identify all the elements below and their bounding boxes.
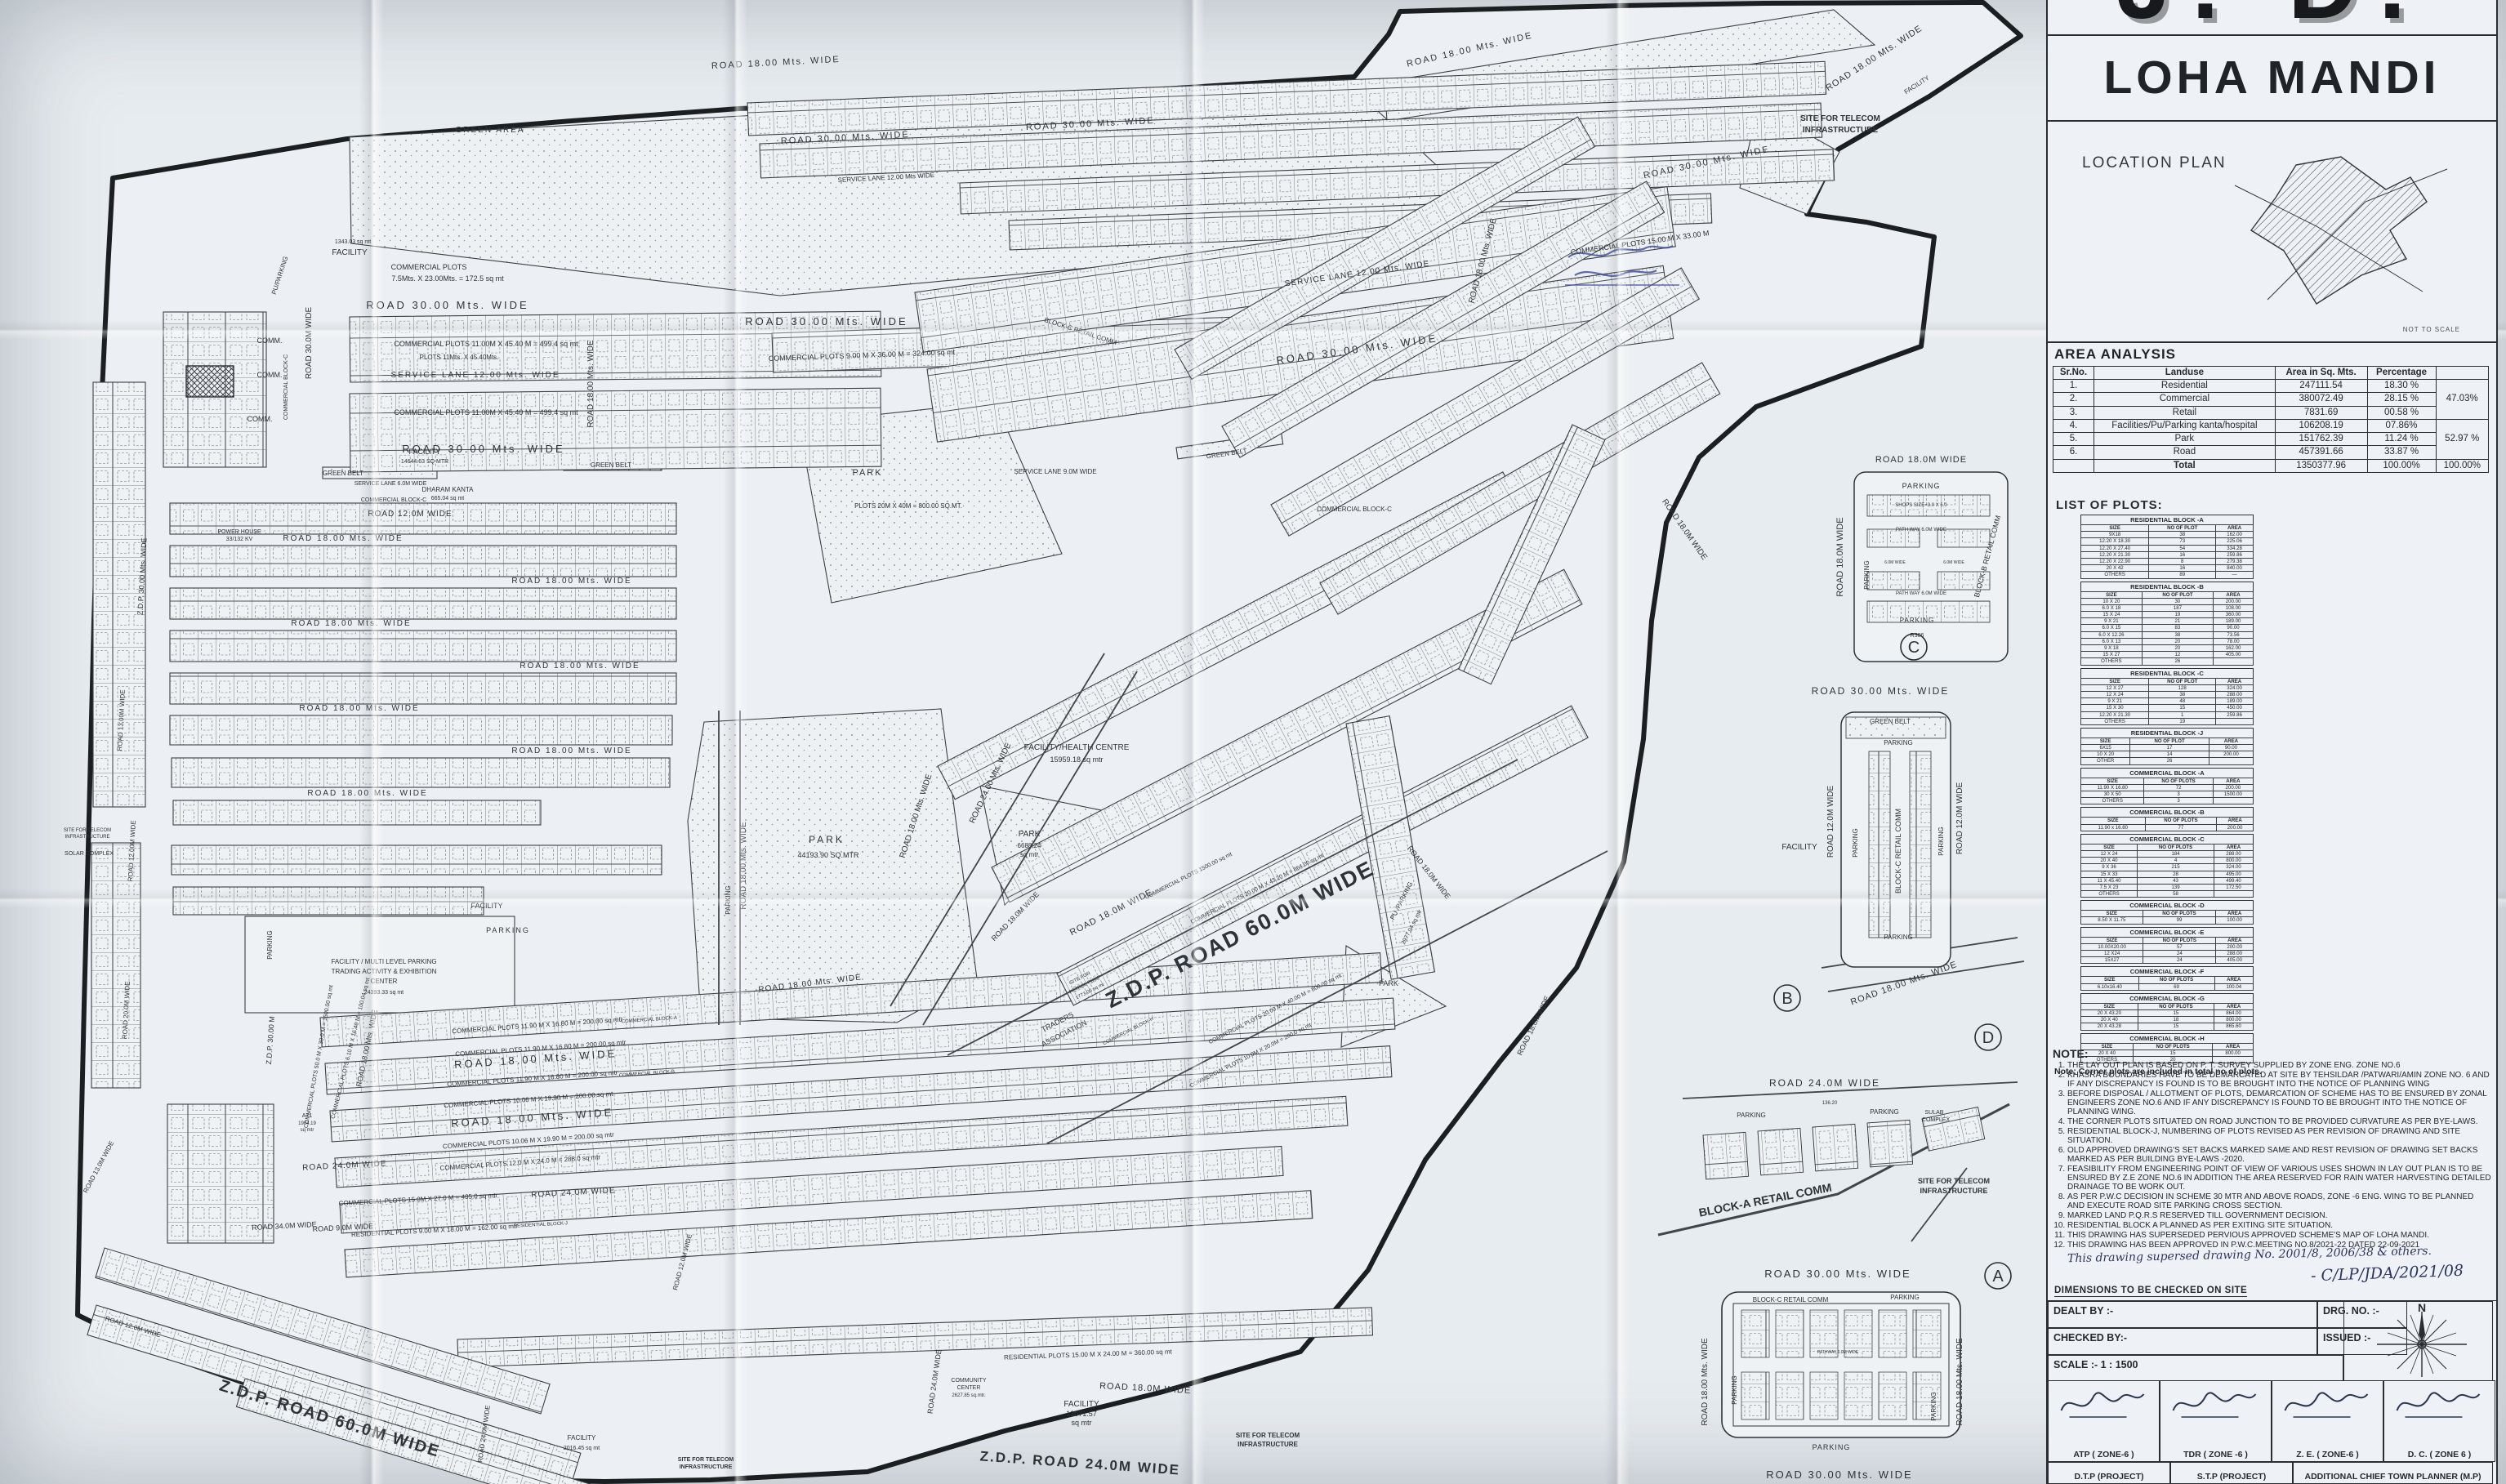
note-item: OLD APPROVED DRAWING'S SET BACKS MARKED … <box>2067 1146 2491 1164</box>
title-panel: J. D. A. LOHA MANDI LOCATION PLAN NOT TO… <box>2046 0 2498 1484</box>
map-label: BLOCK-C RETAIL COMM <box>1753 1296 1829 1304</box>
plot-block-title: COMMERCIAL BLOCK -H <box>2080 1033 2254 1043</box>
note-item: THIS DRAWING HAS SUPERSEDED PERVIOUS APP… <box>2067 1231 2491 1240</box>
map-label: 6.0M WIDE <box>1884 560 1906 565</box>
map-label: 6688.24 <box>1018 842 1041 849</box>
map-label: PARK <box>809 834 845 845</box>
plot-block-table: RESIDENTIAL BLOCK -JSIZENO OF PLOTAREA6X… <box>2080 728 2254 765</box>
map-label: SERVICE LANE 9.0M WIDE <box>1014 468 1096 475</box>
note-item: FEASIBILITY FROM ENGINEERING POINT OF VI… <box>2067 1165 2491 1192</box>
map-label: 14644.63 SQ MTR <box>401 459 448 465</box>
signatory-designation: D. C. ( ZONE 6 ) <box>2384 1450 2495 1459</box>
map-label: SITE FOR TELECOM <box>64 828 111 833</box>
map-label: ROAD 30.0M WIDE <box>305 307 314 380</box>
map-label: COMMUNITY <box>951 1378 986 1384</box>
area-cell: 3. <box>2053 406 2094 419</box>
map-label: PARKING <box>1737 1112 1765 1119</box>
map-label: 2016.45 sq mt <box>564 1446 600 1451</box>
area-row: 5.Park151762.3911.24 % <box>2053 433 2489 446</box>
map-label: SERVICE LANE 6.0M WIDE <box>354 481 427 487</box>
map-label: 1904.19 <box>298 1121 316 1126</box>
map-label: 33/132 KV <box>226 537 253 542</box>
map-label: ROAD 30.00 Mts. WIDE <box>1764 1268 1911 1280</box>
map-label: PLOTS 11Mts. X 45.40Mts. <box>420 354 499 361</box>
map-label: 6.0M WIDE <box>1943 560 1964 565</box>
area-cell: 11.24 % <box>2367 433 2436 446</box>
plot-block-table: RESIDENTIAL BLOCK -ASIZENO OF PLOTAREA9X… <box>2080 515 2254 579</box>
area-cell: 106208.19 <box>2275 419 2367 432</box>
map-label: CENTER <box>957 1385 981 1391</box>
notes-section: NOTE: THE LAY OUT PLAN IS BASED ON P. T.… <box>2048 1045 2496 1250</box>
map-label: PARKING <box>486 926 530 934</box>
area-cell: 457391.66 <box>2275 446 2367 459</box>
compass-rose-icon: N <box>2344 1302 2492 1380</box>
note-item: BEFORE DISPOSAL / ALLOTMENT OF PLOTS, DE… <box>2067 1090 2491 1116</box>
signature-cell: TDR ( ZONE -6 ) <box>2160 1380 2272 1462</box>
map-label: sq mtr <box>1071 1419 1091 1427</box>
map-label: COMM. <box>257 336 283 345</box>
signatory-designation: ATP ( ZONE-6 ) <box>2049 1450 2159 1459</box>
plot-block-table: COMMERCIAL BLOCK -ESIZENO OF PLOTSAREA10… <box>2080 927 2254 965</box>
location-plan-scale-note: NOT TO SCALE <box>2403 326 2460 333</box>
north-compass-cell: N <box>2343 1301 2493 1381</box>
map-label: PARK <box>852 468 882 478</box>
map-label: 1343.03 sq mt <box>335 239 371 245</box>
map-label: GREEN BELT <box>591 461 631 469</box>
map-label: FACILITY <box>1781 843 1817 852</box>
area-row: 6.Road457391.6633.87 % <box>2053 446 2489 459</box>
map-label: SITE FOR TELECOM <box>1918 1177 1990 1185</box>
map-label: SITE FOR TELECOM <box>1236 1432 1300 1439</box>
map-label: COMMERCIAL BLOCK-C <box>1317 506 1392 513</box>
dimensions-note: DIMENSIONS TO BE CHECKED ON SITE <box>2054 1286 2247 1297</box>
handwritten-reference-number: - C/LP/JDA/2021/08 <box>2311 1262 2464 1286</box>
area-cell: 247111.54 <box>2275 380 2367 393</box>
map-label: ROAD 18.00 Mts. WIDE <box>1955 1338 1964 1426</box>
map-label: ROAD 18.0M WIDE <box>1835 517 1845 596</box>
map-label: ROAD 18.00 Mts. WIDE <box>283 534 403 543</box>
map-label: PARKING <box>1900 617 1934 624</box>
plot-block-table: RESIDENTIAL BLOCK -CSIZENO OF PLOTAREA12… <box>2080 668 2254 725</box>
map-label: PARKING <box>1884 934 1912 941</box>
area-analysis-section: AREA ANALYSIS Sr.No.LanduseArea in Sq. M… <box>2048 341 2496 473</box>
area-row: 4.Facilities/Pu/Parking kanta/hospital10… <box>2053 419 2489 432</box>
map-label: PARKING <box>266 930 274 959</box>
area-cell: Residential <box>2094 380 2275 393</box>
map-label: ROAD 24.0M WIDE <box>1769 1077 1880 1089</box>
map-label: DHARAM KANTA <box>422 486 475 493</box>
park-area-large <box>688 709 977 1023</box>
map-label: ROAD 18.00 Mts. WIDE <box>307 789 427 798</box>
map-label: PATH WAY 6.0M WIDE <box>1896 528 1946 533</box>
map-label: ROAD 18.00 Mts. WIDE <box>511 746 631 755</box>
map-label: PARKING <box>1731 1375 1738 1404</box>
map-label: 2627.85 sq.mtr. <box>952 1393 986 1398</box>
map-label: ROAD 18.00 Mts. WIDE <box>519 662 640 671</box>
map-label: sq mtr <box>1020 851 1039 858</box>
signature-ink <box>2057 1386 2151 1431</box>
map-label: ROAD 18.00 Mts. WIDE <box>291 619 411 628</box>
map-label: SERVICE LANE 12.00 Mts. WIDE <box>391 371 560 380</box>
area-total-cell: Total <box>2094 459 2275 472</box>
map-label: INFRASTRUCTURE <box>680 1464 733 1470</box>
plot-block-title: COMMERCIAL BLOCK -C <box>2080 834 2254 844</box>
title-block-grid: DEALT BY :- CHECKED BY:- SCALE :- 1 : 15… <box>2048 1300 2496 1381</box>
map-label: ROAD 18.00 Mts. WIDE <box>739 822 748 910</box>
layout-plan-map: GREEN AREAROAD 18.00 Mts. WIDEROAD 30.00… <box>0 0 2046 1484</box>
map-label: PARKING <box>1870 1108 1898 1116</box>
map-label: INFRASTRUCTURE <box>1920 1187 1988 1195</box>
area-total-cell: 100.00% <box>2436 459 2488 472</box>
map-label: PARKING <box>1863 560 1871 589</box>
map-label: COMPLEX <box>1922 1117 1951 1123</box>
map-label: PATH WAY 6.0M WIDE <box>1896 591 1946 596</box>
note-item: RESIDENTIAL BLOCK-J, NUMBERING OF PLOTS … <box>2067 1127 2491 1145</box>
area-total-row: Total1350377.96100.00%100.00% <box>2053 459 2489 472</box>
map-label: PATHWAY 6.0M WIDE <box>1817 1350 1859 1355</box>
map-label: POWER HOUSE <box>217 529 261 535</box>
map-label: A71 <box>302 1113 313 1119</box>
plot-block-title: COMMERCIAL BLOCK -B <box>2080 807 2254 817</box>
area-cell: 07.86% <box>2367 419 2436 432</box>
note-item: THE CORNER PLOTS SITUATED ON ROAD JUNCTI… <box>2067 1117 2491 1126</box>
area-row: 1.Residential247111.5418.30 %47.03% <box>2053 380 2489 393</box>
signature-cell: D. C. ( ZONE 6 ) <box>2383 1380 2495 1462</box>
plot-block-title: COMMERCIAL BLOCK -D <box>2080 900 2254 910</box>
map-label: FACILITY <box>332 248 368 257</box>
notes-heading: NOTE: <box>2053 1047 2496 1060</box>
block-circle-letter: D <box>1982 1029 1994 1047</box>
area-group-percentage: 47.03% <box>2436 380 2488 420</box>
map-label: SOLAR COMPLEX <box>65 851 114 857</box>
signature-cell: Z. E. ( ZONE-6 ) <box>2272 1380 2383 1462</box>
note-item: MARKED LAND P.Q.R.S RESERVED TILL GOVERN… <box>2067 1211 2491 1220</box>
map-label: INFRASTRUCTURE <box>65 835 110 840</box>
area-col-header <box>2436 367 2488 380</box>
area-cell: Commercial <box>2094 393 2275 406</box>
map-label: PARKING <box>1930 1392 1937 1420</box>
signature-ink <box>2392 1386 2486 1431</box>
area-cell: 2. <box>2053 393 2094 406</box>
area-group-percentage: 52.97 % <box>2436 419 2488 459</box>
map-label: FACILITY <box>470 902 502 910</box>
block-circle-letter: C <box>1908 639 1920 657</box>
map-label: FACILITY <box>1063 1400 1099 1409</box>
north-label: N <box>2418 1302 2426 1314</box>
map-label: SITE FOR TELECOM <box>678 1457 734 1463</box>
plot-block-table: COMMERCIAL BLOCK -FSIZENO OF PLOTSAREA6.… <box>2080 966 2254 990</box>
map-label: GREEN BELT <box>323 470 363 477</box>
area-cell: 28.15 % <box>2367 393 2436 406</box>
map-label: 44193.90 SQ.MTR <box>797 851 859 859</box>
map-label: COMMERCIAL PLOTS 11.00M X 45.40 M = 499.… <box>394 408 578 417</box>
map-label: PLOTS 20M X 40M = 800.00 SQ.MT. <box>854 502 962 510</box>
map-label: PARK <box>1019 830 1041 839</box>
map-label: PARK <box>1379 979 1398 987</box>
map-label: 24393.33 sq mt <box>364 990 404 996</box>
plot-block-title: COMMERCIAL BLOCK -G <box>2080 993 2254 1003</box>
map-label: Z.D.P. ROAD 24.0M WIDE <box>979 1448 1181 1477</box>
signature-row-1: ATP ( ZONE-6 )TDR ( ZONE -6 )Z. E. ( ZON… <box>2048 1380 2496 1462</box>
map-label: CENTER <box>371 978 398 985</box>
area-cell: Park <box>2094 433 2275 446</box>
area-cell: 18.30 % <box>2367 380 2436 393</box>
area-analysis-table: Sr.No.LanduseArea in Sq. Mts.Percentage … <box>2053 366 2489 473</box>
scanned-drawing-sheet: GREEN AREAROAD 18.00 Mts. WIDEROAD 30.00… <box>0 0 2506 1484</box>
agency-name: J. D. A. <box>2048 0 2496 36</box>
area-col-header: Sr.No. <box>2053 367 2094 380</box>
map-label: ROAD 30.00 Mts. WIDE <box>1812 685 1950 697</box>
map-label: PARKING <box>1937 827 1945 855</box>
area-cell: Retail <box>2094 406 2275 419</box>
map-label: ROAD 30.00 Mts. WIDE <box>1766 1468 1912 1481</box>
map-label: COMMERCIAL BLOCK-C <box>283 354 289 420</box>
area-cell: Road <box>2094 446 2275 459</box>
area-col-header: Landuse <box>2094 367 2275 380</box>
signatory-designation: Z. E. ( ZONE-6 ) <box>2272 1450 2383 1459</box>
map-label: ROAD 12.0M WIDE <box>1826 786 1835 858</box>
map-label: ROAD 18.00 Mts. WIDE <box>299 704 419 713</box>
list-of-plots-heading: LIST OF PLOTS: <box>2056 498 2496 512</box>
map-label: ROAD 30.00 Mts. WIDE <box>366 299 528 311</box>
signature-cell: S.T.P (PROJECT) <box>2170 1462 2293 1484</box>
map-label: FACILITY/HEALTH CENTRE <box>1024 743 1130 752</box>
area-col-header: Percentage <box>2367 367 2436 380</box>
area-cell: 1. <box>2053 380 2094 393</box>
scale-cell: SCALE :- 1 : 1500 <box>2048 1355 2343 1381</box>
map-label: ROAD 18.0M WIDE <box>1875 455 1967 465</box>
area-total-cell <box>2053 459 2094 472</box>
location-plan: LOCATION PLAN NOT TO SCALE <box>2048 120 2496 343</box>
agency-header: J. D. A. <box>2048 0 2496 36</box>
map-label: 136.20 <box>1822 1101 1838 1106</box>
location-plan-map <box>2218 153 2464 324</box>
map-label: PARKING <box>1902 482 1941 490</box>
signatory-designation: S.T.P (PROJECT) <box>2171 1472 2292 1482</box>
signature-cell: ADDITIONAL CHIEF TOWN PLANNER (M.P) <box>2293 1462 2493 1484</box>
plot-block-title: RESIDENTIAL BLOCK -C <box>2080 668 2254 678</box>
inset-block-a <box>1722 1292 1960 1437</box>
plot-block-title: COMMERCIAL BLOCK -E <box>2080 927 2254 937</box>
map-label: FACILITY <box>408 448 440 456</box>
note-item: KHASRA BOUNDARIES HAVE TO BE DEMARCATED … <box>2067 1071 2491 1089</box>
map-label: 15959.18 sq mtr <box>1050 755 1103 764</box>
map-label: PARKING <box>1884 739 1912 746</box>
note-item: RESIDENTIAL BLOCK A PLANNED AS PER EXITI… <box>2067 1221 2491 1230</box>
area-cell: 33.87 % <box>2367 446 2436 459</box>
map-label: ROAD 12.0M WIDE <box>1955 782 1964 855</box>
reserved-plot-hatched <box>186 366 234 397</box>
area-cell: 5. <box>2053 433 2094 446</box>
block-circle-letter: B <box>1781 990 1792 1008</box>
map-label: 665.04 sq mt <box>431 496 465 501</box>
plot-block-table: COMMERCIAL BLOCK -DSIZENO OF PLOTSAREA8.… <box>2080 900 2254 924</box>
map-label: FACILITY / MULTI LEVEL PARKING <box>331 958 436 965</box>
plot-block-table: COMMERCIAL BLOCK -GSIZENO OF PLOTSAREA20… <box>2080 993 2254 1031</box>
map-label: INFRASTRUCTURE <box>1237 1441 1298 1448</box>
note-item: AS PER P.W.C DECISION IN SCHEME 30 MTR A… <box>2067 1192 2491 1210</box>
plot-block-table: COMMERCIAL BLOCK -ASIZENO OF PLOTSAREA11… <box>2080 768 2254 805</box>
map-label: INFRASTRUCTURE <box>1803 126 1879 135</box>
area-row: 3.Retail7831.6900.58 % <box>2053 406 2489 419</box>
signatory-designation: TDR ( ZONE -6 ) <box>2160 1450 2271 1459</box>
checked-by-cell: CHECKED BY:- <box>2048 1328 2317 1355</box>
area-analysis-heading: AREA ANALYSIS <box>2054 346 2496 363</box>
map-label: PARKING <box>1852 828 1859 857</box>
plot-block-title: COMMERCIAL BLOCK -A <box>2080 768 2254 778</box>
dealt-by-cell: DEALT BY :- <box>2048 1301 2317 1328</box>
map-label: PARKING <box>1813 1443 1851 1451</box>
plot-block-table: COMMERCIAL BLOCK -CSIZENO OF PLOTSAREA12… <box>2080 834 2254 898</box>
map-label: ROAD 18.00 Mts. WIDE <box>511 577 631 586</box>
map-label: SHOPS SIZE=3.0 X 6.0 <box>1895 503 1947 508</box>
area-row: 2.Commercial380072.4928.15 % <box>2053 393 2489 406</box>
map-label: COMMERCIAL PLOTS <box>391 263 467 271</box>
map-label: GREEN AREA <box>455 126 524 135</box>
area-total-cell: 1350377.96 <box>2275 459 2367 472</box>
list-of-plots-section: LIST OF PLOTS: RESIDENTIAL BLOCK -ASIZEN… <box>2048 497 2496 1076</box>
area-cell: 380072.49 <box>2275 393 2367 406</box>
area-cell: 7831.69 <box>2275 406 2367 419</box>
scheme-title: LOHA MANDI <box>2103 51 2440 105</box>
scheme-title-box: LOHA MANDI <box>2048 34 2496 122</box>
signature-cell: D.T.P (PROJECT) <box>2048 1462 2170 1484</box>
map-label: ROAD 18.00 Mts. WIDE <box>586 340 595 428</box>
map-label: GREEN BELT <box>1870 718 1911 725</box>
area-total-cell: 100.00% <box>2367 459 2436 472</box>
map-label: ROAD 18.00 Mts. WIDE <box>1701 1338 1710 1426</box>
plot-block-title: RESIDENTIAL BLOCK -A <box>2080 515 2254 524</box>
note-item: THE LAY OUT PLAN IS BASED ON P. T. SURVE… <box>2067 1061 2491 1070</box>
map-label: FACILITY <box>568 1434 596 1442</box>
signature-cell: ATP ( ZONE-6 ) <box>2048 1380 2160 1462</box>
map-label: ROAD 30.00 Mts. WIDE <box>745 315 907 328</box>
plot-block-title: COMMERCIAL BLOCK -F <box>2080 966 2254 976</box>
signature-ink <box>2169 1386 2263 1431</box>
area-cell: 4. <box>2053 419 2094 432</box>
signature-row-2: D.T.P (PROJECT)S.T.P (PROJECT)ADDITIONAL… <box>2048 1462 2496 1484</box>
block-circle-letter: A <box>1992 1268 2004 1286</box>
map-label: SITE FOR TELECOM <box>1800 114 1880 123</box>
area-col-header: Area in Sq. Mts. <box>2275 367 2367 380</box>
area-cell: 151762.39 <box>2275 433 2367 446</box>
map-label: ROAD 12.0M WIDE <box>368 510 452 519</box>
map-label: PARKING <box>725 885 732 914</box>
signature-ink <box>2281 1386 2374 1431</box>
map-label: PARKING <box>1890 1294 1919 1301</box>
signatory-designation: D.T.P (PROJECT) <box>2049 1472 2169 1482</box>
map-label: COMMERCIAL PLOTS 11.00M X 45.40 M = 499.… <box>394 340 578 348</box>
plot-block-title: RESIDENTIAL BLOCK -B <box>2080 582 2254 591</box>
map-label: SULAB <box>1925 1110 1944 1116</box>
map-label: BLOCK-C RETAIL COMM <box>1894 809 1902 894</box>
plot-block-title: RESIDENTIAL BLOCK -J <box>2080 728 2254 738</box>
map-label: COMM. <box>247 415 273 423</box>
map-label: 13071.57 <box>1066 1410 1097 1418</box>
map-label: sq mtr <box>301 1128 314 1133</box>
area-cell: 00.58 % <box>2367 406 2436 419</box>
signatory-designation: ADDITIONAL CHIEF TOWN PLANNER (M.P) <box>2294 1472 2492 1482</box>
plot-block-table: RESIDENTIAL BLOCK -BSIZENO OF PLOTAREA10… <box>2080 582 2254 666</box>
map-label: COMMERCIAL BLOCK-C <box>361 497 426 503</box>
area-cell: Facilities/Pu/Parking kanta/hospital <box>2094 419 2275 432</box>
plot-block-table: COMMERCIAL BLOCK -BSIZENO OF PLOTSAREA11… <box>2080 807 2254 831</box>
map-label: TRADING ACTIVITY & EXHIBITION <box>332 968 437 975</box>
map-label: 7.5Mts. X 23.00Mts. = 172.5 sq mt <box>391 274 504 283</box>
area-cell: 6. <box>2053 446 2094 459</box>
map-label: COMM. <box>257 371 283 379</box>
map-label: ROAD 18.00 Mts. WIDE <box>711 55 841 71</box>
location-plan-label: LOCATION PLAN <box>2082 154 2227 172</box>
